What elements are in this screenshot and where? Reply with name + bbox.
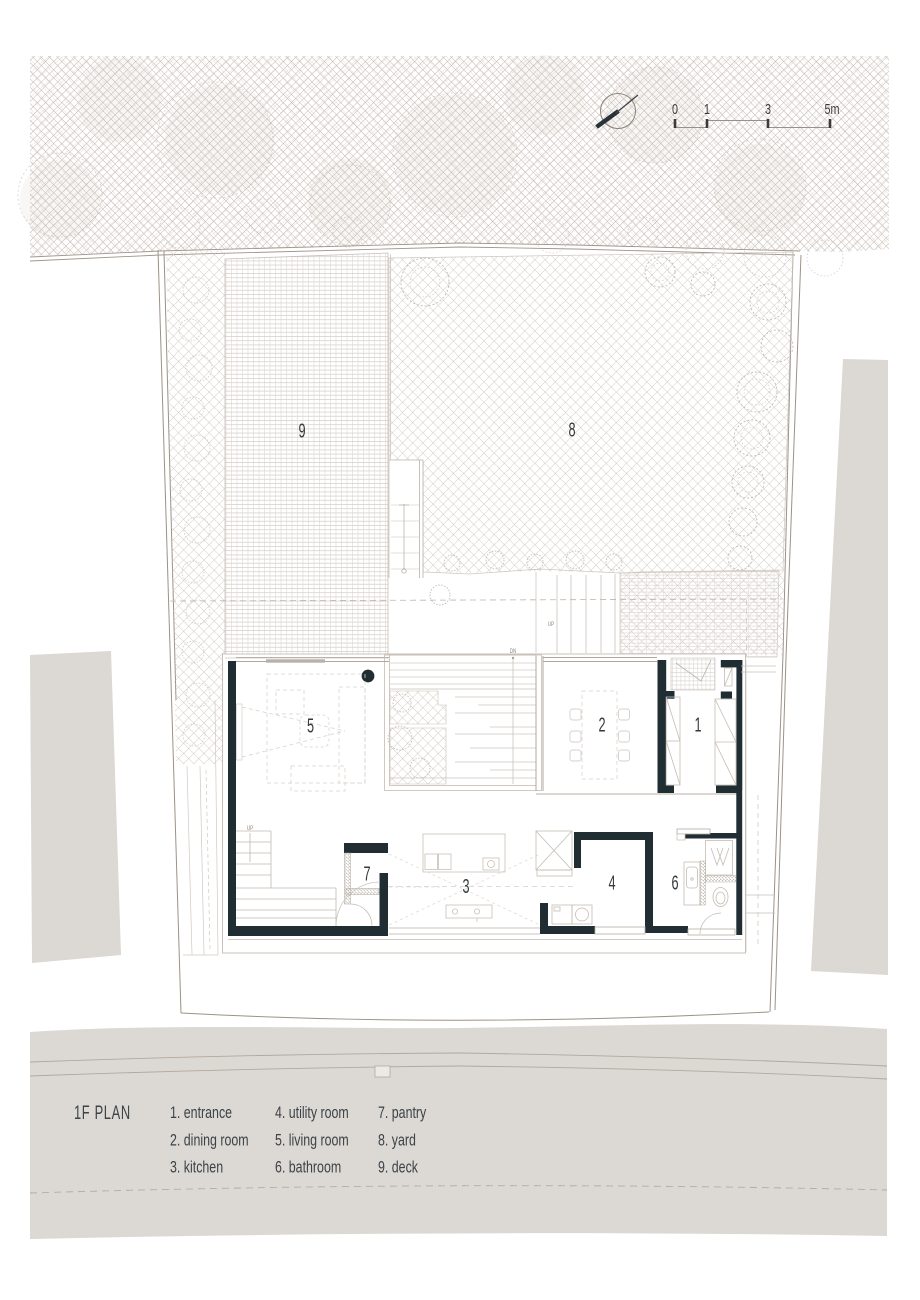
svg-text:8: 8 bbox=[568, 418, 575, 441]
svg-text:8. yard: 8. yard bbox=[378, 1132, 416, 1150]
svg-text:3. kitchen: 3. kitchen bbox=[170, 1159, 223, 1177]
svg-text:DN: DN bbox=[510, 648, 517, 655]
svg-text:0: 0 bbox=[672, 100, 678, 117]
svg-text:6. bathroom: 6. bathroom bbox=[275, 1159, 341, 1177]
svg-text:6: 6 bbox=[671, 871, 678, 894]
svg-text:5. living room: 5. living room bbox=[275, 1132, 349, 1150]
svg-text:2: 2 bbox=[598, 713, 605, 736]
svg-text:9: 9 bbox=[298, 419, 305, 442]
svg-text:1F PLAN: 1F PLAN bbox=[74, 1101, 131, 1123]
svg-text:1. entrance: 1. entrance bbox=[170, 1104, 232, 1122]
svg-text:4: 4 bbox=[608, 871, 615, 894]
svg-text:UP: UP bbox=[548, 621, 555, 628]
svg-text:5m: 5m bbox=[825, 100, 840, 117]
svg-text:1: 1 bbox=[704, 100, 710, 117]
svg-text:5: 5 bbox=[307, 714, 314, 737]
svg-text:9. deck: 9. deck bbox=[378, 1159, 418, 1177]
svg-text:1: 1 bbox=[694, 713, 701, 736]
svg-text:3: 3 bbox=[462, 875, 469, 898]
svg-text:UP: UP bbox=[247, 825, 254, 832]
svg-text:7: 7 bbox=[363, 862, 370, 885]
svg-text:4. utility room: 4. utility room bbox=[275, 1104, 349, 1122]
svg-text:3: 3 bbox=[765, 100, 771, 117]
svg-text:7. pantry: 7. pantry bbox=[378, 1104, 427, 1122]
svg-text:2. dining room: 2. dining room bbox=[170, 1132, 249, 1150]
